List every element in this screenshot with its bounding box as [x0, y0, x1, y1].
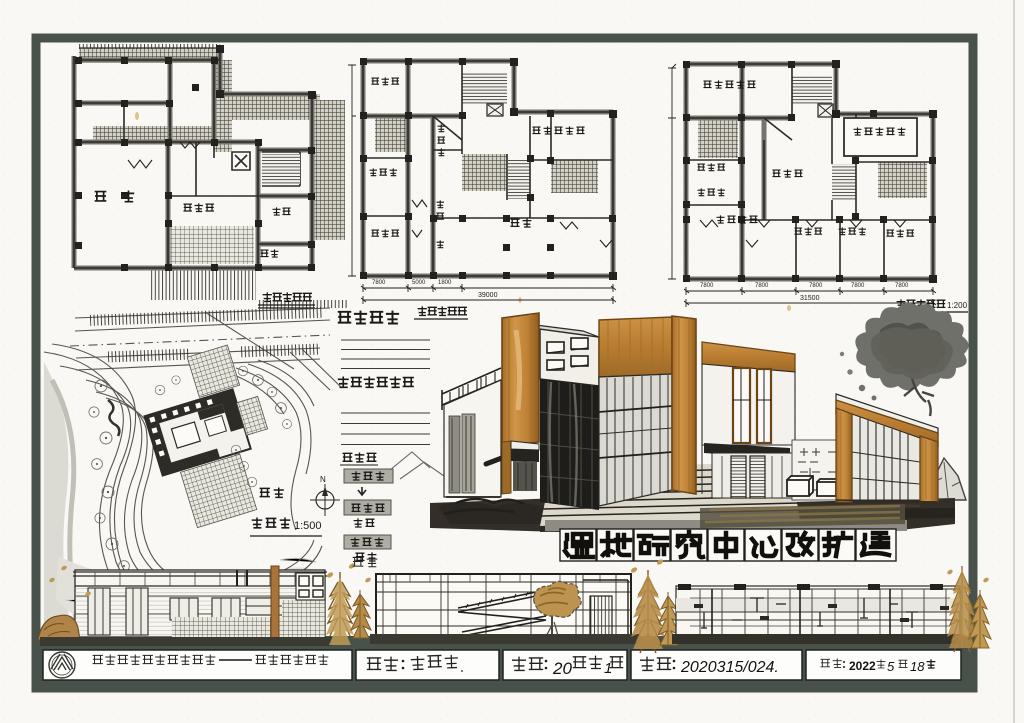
svg-text:7800: 7800 [700, 283, 714, 289]
svg-text:5: 5 [887, 659, 895, 674]
svg-text:7800: 7800 [851, 283, 865, 289]
svg-text:7800: 7800 [372, 280, 386, 286]
svg-text:1:500: 1:500 [294, 520, 322, 532]
svg-text:7800: 7800 [809, 283, 823, 289]
svg-text:1:200: 1:200 [947, 301, 968, 310]
svg-text:2020315/024.: 2020315/024. [680, 659, 779, 676]
svg-text:5000: 5000 [412, 280, 426, 286]
svg-text:31500: 31500 [800, 295, 820, 302]
svg-text:20: 20 [552, 659, 572, 678]
svg-text:39000: 39000 [478, 292, 498, 299]
svg-text:N: N [320, 475, 326, 484]
svg-text:7800: 7800 [755, 283, 769, 289]
svg-text:2022: 2022 [849, 659, 876, 673]
svg-text:18: 18 [910, 659, 925, 674]
svg-text:1: 1 [604, 660, 612, 677]
svg-text:7800: 7800 [895, 283, 909, 289]
svg-text:1800: 1800 [438, 280, 452, 286]
